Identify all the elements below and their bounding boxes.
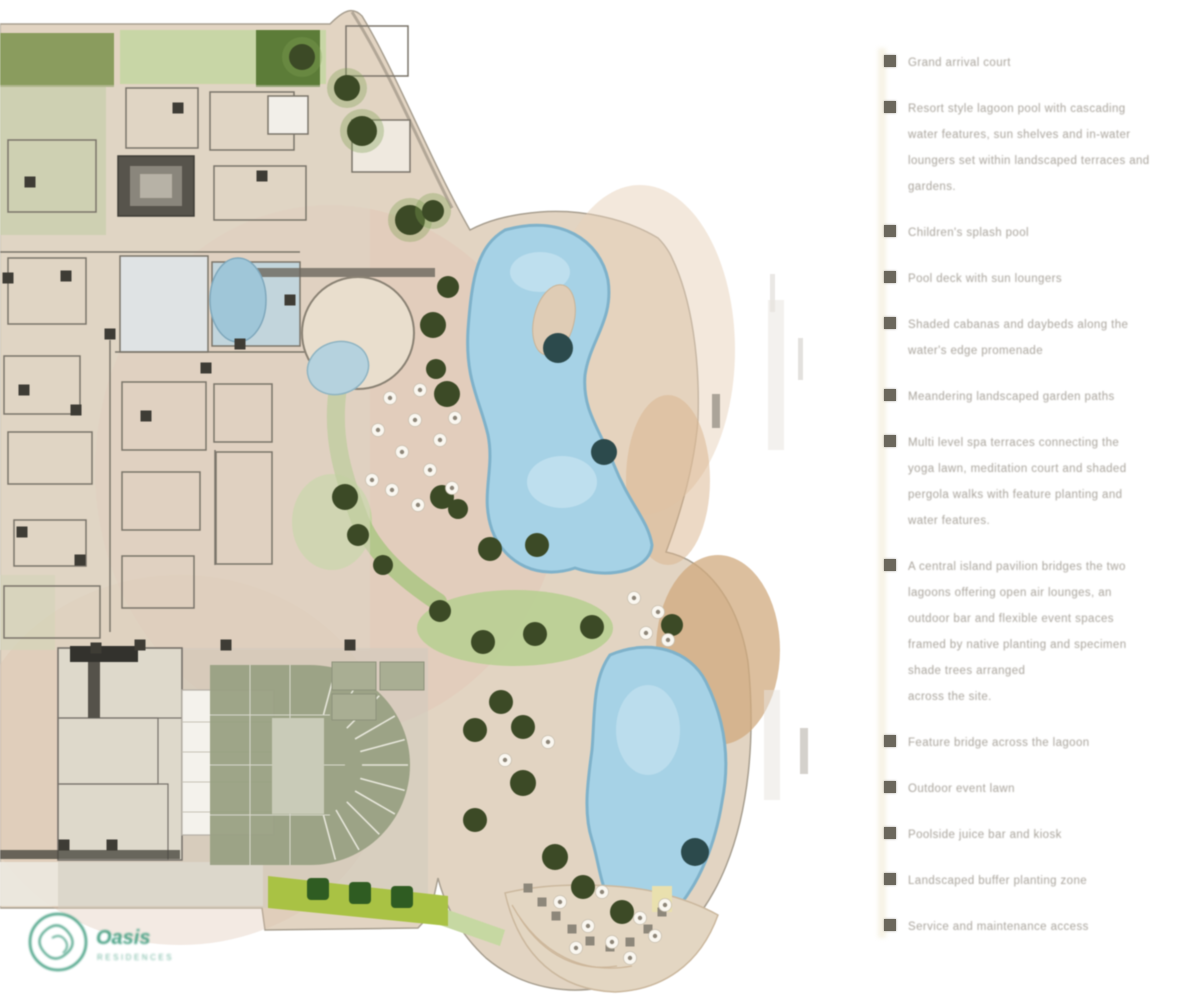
legend-item-text-line: water features, sun shelves and in-water xyxy=(908,122,1184,148)
stepping-stone xyxy=(568,925,577,934)
tree-icon xyxy=(571,875,595,899)
tree-icon xyxy=(591,439,617,465)
legend-item: Resort style lagoon pool with cascadingw… xyxy=(884,96,1184,200)
tree-icon xyxy=(347,524,369,546)
tree-icon xyxy=(463,718,487,742)
umbrella-center-dot xyxy=(388,396,392,400)
legend-bullet-icon xyxy=(884,559,896,571)
tree-icon xyxy=(542,844,568,870)
umbrella-center-dot xyxy=(638,916,642,920)
umbrella-center-dot xyxy=(632,596,636,600)
column-marker xyxy=(17,527,28,538)
legend-item-text-line: across the site. xyxy=(908,684,1184,710)
umbrella-center-dot xyxy=(413,418,417,422)
legend-bullet-icon xyxy=(884,271,896,283)
tree-icon xyxy=(289,44,315,70)
column-marker xyxy=(135,640,146,651)
legend-item-text-line: Meandering landscaped garden paths xyxy=(908,384,1184,410)
umbrella-center-dot xyxy=(574,946,578,950)
legend-item: Service and maintenance access xyxy=(884,914,1184,940)
column-marker xyxy=(71,405,82,416)
legend-item: Pool deck with sun loungers xyxy=(884,266,1184,292)
tree-icon xyxy=(332,484,358,510)
umbrella-center-dot xyxy=(586,924,590,928)
legend-item-text: Poolside juice bar and kiosk xyxy=(908,822,1184,848)
legend-item-text-line: Feature bridge across the lagoon xyxy=(908,730,1184,756)
legend-item-text-line: Children's splash pool xyxy=(908,220,1184,246)
column-marker xyxy=(75,555,86,566)
column-marker xyxy=(105,329,116,340)
legend-bullet-icon xyxy=(884,781,896,793)
umbrella-center-dot xyxy=(416,503,420,507)
column-marker xyxy=(25,177,36,188)
legend-bullet-icon xyxy=(884,389,896,401)
stepping-stone xyxy=(626,938,635,947)
umbrella-center-dot xyxy=(370,478,374,482)
stepping-stone xyxy=(538,898,547,907)
column-marker xyxy=(61,271,72,282)
column-marker xyxy=(235,339,246,350)
tree-icon xyxy=(610,900,634,924)
legend-item: Landscaped buffer planting zone xyxy=(884,868,1184,894)
umbrella-center-dot xyxy=(656,610,660,614)
tree-icon xyxy=(463,808,487,832)
tree-icon xyxy=(525,533,549,557)
legend-item-text-line: A central island pavilion bridges the tw… xyxy=(908,554,1184,580)
legend-item-text-line: water features. xyxy=(908,508,1184,534)
legend-bullet-icon xyxy=(884,873,896,885)
master-plan-drawing xyxy=(0,0,860,1000)
legend-item-text-line: framed by native planting and specimen xyxy=(908,632,1184,658)
tree-icon xyxy=(580,615,604,639)
legend-item-text: Meandering landscaped garden paths xyxy=(908,384,1184,410)
column-marker xyxy=(91,643,102,654)
developer-logo: Oasis RESIDENCES xyxy=(24,900,224,990)
tree-icon xyxy=(334,75,360,101)
tree-icon xyxy=(448,499,468,519)
logo-emblem-icon xyxy=(30,914,86,970)
column-marker xyxy=(221,640,232,651)
legend-item-text: Outdoor event lawn xyxy=(908,776,1184,802)
tree-icon xyxy=(420,312,446,338)
tree-icon xyxy=(391,886,413,908)
legend-item: Outdoor event lawn xyxy=(884,776,1184,802)
stepping-stone xyxy=(524,884,533,893)
legend-bullet-icon xyxy=(884,225,896,237)
legend-item-text-line: Service and maintenance access xyxy=(908,914,1184,940)
logo-name: Oasis xyxy=(96,927,150,949)
legend-item-text-line: Poolside juice bar and kiosk xyxy=(908,822,1184,848)
umbrella-center-dot xyxy=(438,438,442,442)
column-marker xyxy=(345,640,356,651)
umbrella-center-dot xyxy=(628,956,632,960)
legend-item: Meandering landscaped garden paths xyxy=(884,384,1184,410)
umbrella-center-dot xyxy=(418,388,422,392)
legend-bullet-icon xyxy=(884,919,896,931)
site-plan-page: Grand arrival courtResort style lagoon p… xyxy=(0,0,1200,1000)
tree-icon xyxy=(661,614,683,636)
tree-icon xyxy=(471,630,495,654)
legend-item-text: Multi level spa terraces connecting they… xyxy=(908,430,1184,534)
legend-item-text: Feature bridge across the lagoon xyxy=(908,730,1184,756)
clubhouse-building-plan xyxy=(0,646,428,908)
legend-item-text-line: Resort style lagoon pool with cascading xyxy=(908,96,1184,122)
umbrella-center-dot xyxy=(453,416,457,420)
tree-icon xyxy=(426,359,446,379)
legend-item: Grand arrival court xyxy=(884,50,1184,76)
legend-item-text-line: yoga lawn, meditation court and shaded xyxy=(908,456,1184,482)
tree-icon xyxy=(543,333,573,363)
legend-item-text: A central island pavilion bridges the tw… xyxy=(908,554,1184,710)
umbrella-center-dot xyxy=(376,428,380,432)
legend-item-text: Resort style lagoon pool with cascadingw… xyxy=(908,96,1184,200)
column-marker xyxy=(201,363,212,374)
column-marker xyxy=(107,840,118,851)
legend-item-text: Shaded cabanas and daybeds along thewate… xyxy=(908,312,1184,364)
tree-icon xyxy=(511,715,535,739)
legend-item: Children's splash pool xyxy=(884,220,1184,246)
tree-icon xyxy=(422,200,444,222)
legend-bullet-icon xyxy=(884,101,896,113)
legend-bullet-icon xyxy=(884,435,896,447)
legend-item-text-line: Outdoor event lawn xyxy=(908,776,1184,802)
legend-item: Feature bridge across the lagoon xyxy=(884,730,1184,756)
umbrella-center-dot xyxy=(546,740,550,744)
logo-subtitle: RESIDENCES xyxy=(97,953,174,962)
tree-icon xyxy=(349,882,371,904)
tree-icon xyxy=(478,537,502,561)
column-marker xyxy=(141,411,152,422)
legend-item-text-line: lagoons offering open air lounges, an xyxy=(908,580,1184,606)
tree-icon xyxy=(347,116,377,146)
legend-item-text-line: loungers set within landscaped terraces … xyxy=(908,148,1184,174)
legend-item-text: Children's splash pool xyxy=(908,220,1184,246)
tree-icon xyxy=(437,276,459,298)
legend-item: Shaded cabanas and daybeds along thewate… xyxy=(884,312,1184,364)
umbrella-center-dot xyxy=(644,631,648,635)
stepping-stone xyxy=(586,937,595,946)
legend-bullet-icon xyxy=(884,55,896,67)
umbrella-center-dot xyxy=(610,940,614,944)
legend: Grand arrival courtResort style lagoon p… xyxy=(884,50,1184,960)
legend-item-text: Service and maintenance access xyxy=(908,914,1184,940)
column-marker xyxy=(257,171,268,182)
legend-item: A central island pavilion bridges the tw… xyxy=(884,554,1184,710)
umbrella-center-dot xyxy=(653,934,657,938)
column-marker xyxy=(285,295,296,306)
column-marker xyxy=(3,273,14,284)
column-marker xyxy=(173,103,184,114)
tree-icon xyxy=(510,770,536,796)
legend-item-text-line: Multi level spa terraces connecting the xyxy=(908,430,1184,456)
legend-bullet-icon xyxy=(884,317,896,329)
tree-icon xyxy=(429,600,451,622)
legend-bullet-icon xyxy=(884,827,896,839)
umbrella-center-dot xyxy=(558,900,562,904)
umbrella-center-dot xyxy=(450,486,454,490)
stepping-stone xyxy=(552,912,561,921)
umbrella-center-dot xyxy=(666,638,670,642)
umbrella-center-dot xyxy=(503,758,507,762)
umbrella-center-dot xyxy=(390,488,394,492)
umbrella-center-dot xyxy=(428,468,432,472)
legend-item: Multi level spa terraces connecting they… xyxy=(884,430,1184,534)
column-marker xyxy=(19,385,30,396)
legend-item-text: Landscaped buffer planting zone xyxy=(908,868,1184,894)
tree-icon xyxy=(681,838,709,866)
tree-icon xyxy=(523,622,547,646)
legend-item-text-line: shade trees arranged xyxy=(908,658,1184,684)
tree-icon xyxy=(307,878,329,900)
legend-item-text-line: Pool deck with sun loungers xyxy=(908,266,1184,292)
legend-bullet-icon xyxy=(884,735,896,747)
legend-item-text-line: Landscaped buffer planting zone xyxy=(908,868,1184,894)
legend-item-text: Pool deck with sun loungers xyxy=(908,266,1184,292)
tree-icon xyxy=(434,381,460,407)
legend-item: Poolside juice bar and kiosk xyxy=(884,822,1184,848)
legend-item-text-line: pergola walks with feature planting and xyxy=(908,482,1184,508)
legend-item-text-line: outdoor bar and flexible event spaces xyxy=(908,606,1184,632)
legend-item-text-line: water's edge promenade xyxy=(908,338,1184,364)
tree-icon xyxy=(489,690,513,714)
tree-icon xyxy=(373,555,393,575)
column-marker xyxy=(59,840,70,851)
legend-item-text-line: gardens. xyxy=(908,174,1184,200)
legend-item-text: Grand arrival court xyxy=(908,50,1184,76)
umbrella-center-dot xyxy=(600,890,604,894)
umbrella-center-dot xyxy=(400,450,404,454)
umbrella-center-dot xyxy=(663,903,667,907)
legend-item-text-line: Grand arrival court xyxy=(908,50,1184,76)
legend-item-text-line: Shaded cabanas and daybeds along the xyxy=(908,312,1184,338)
